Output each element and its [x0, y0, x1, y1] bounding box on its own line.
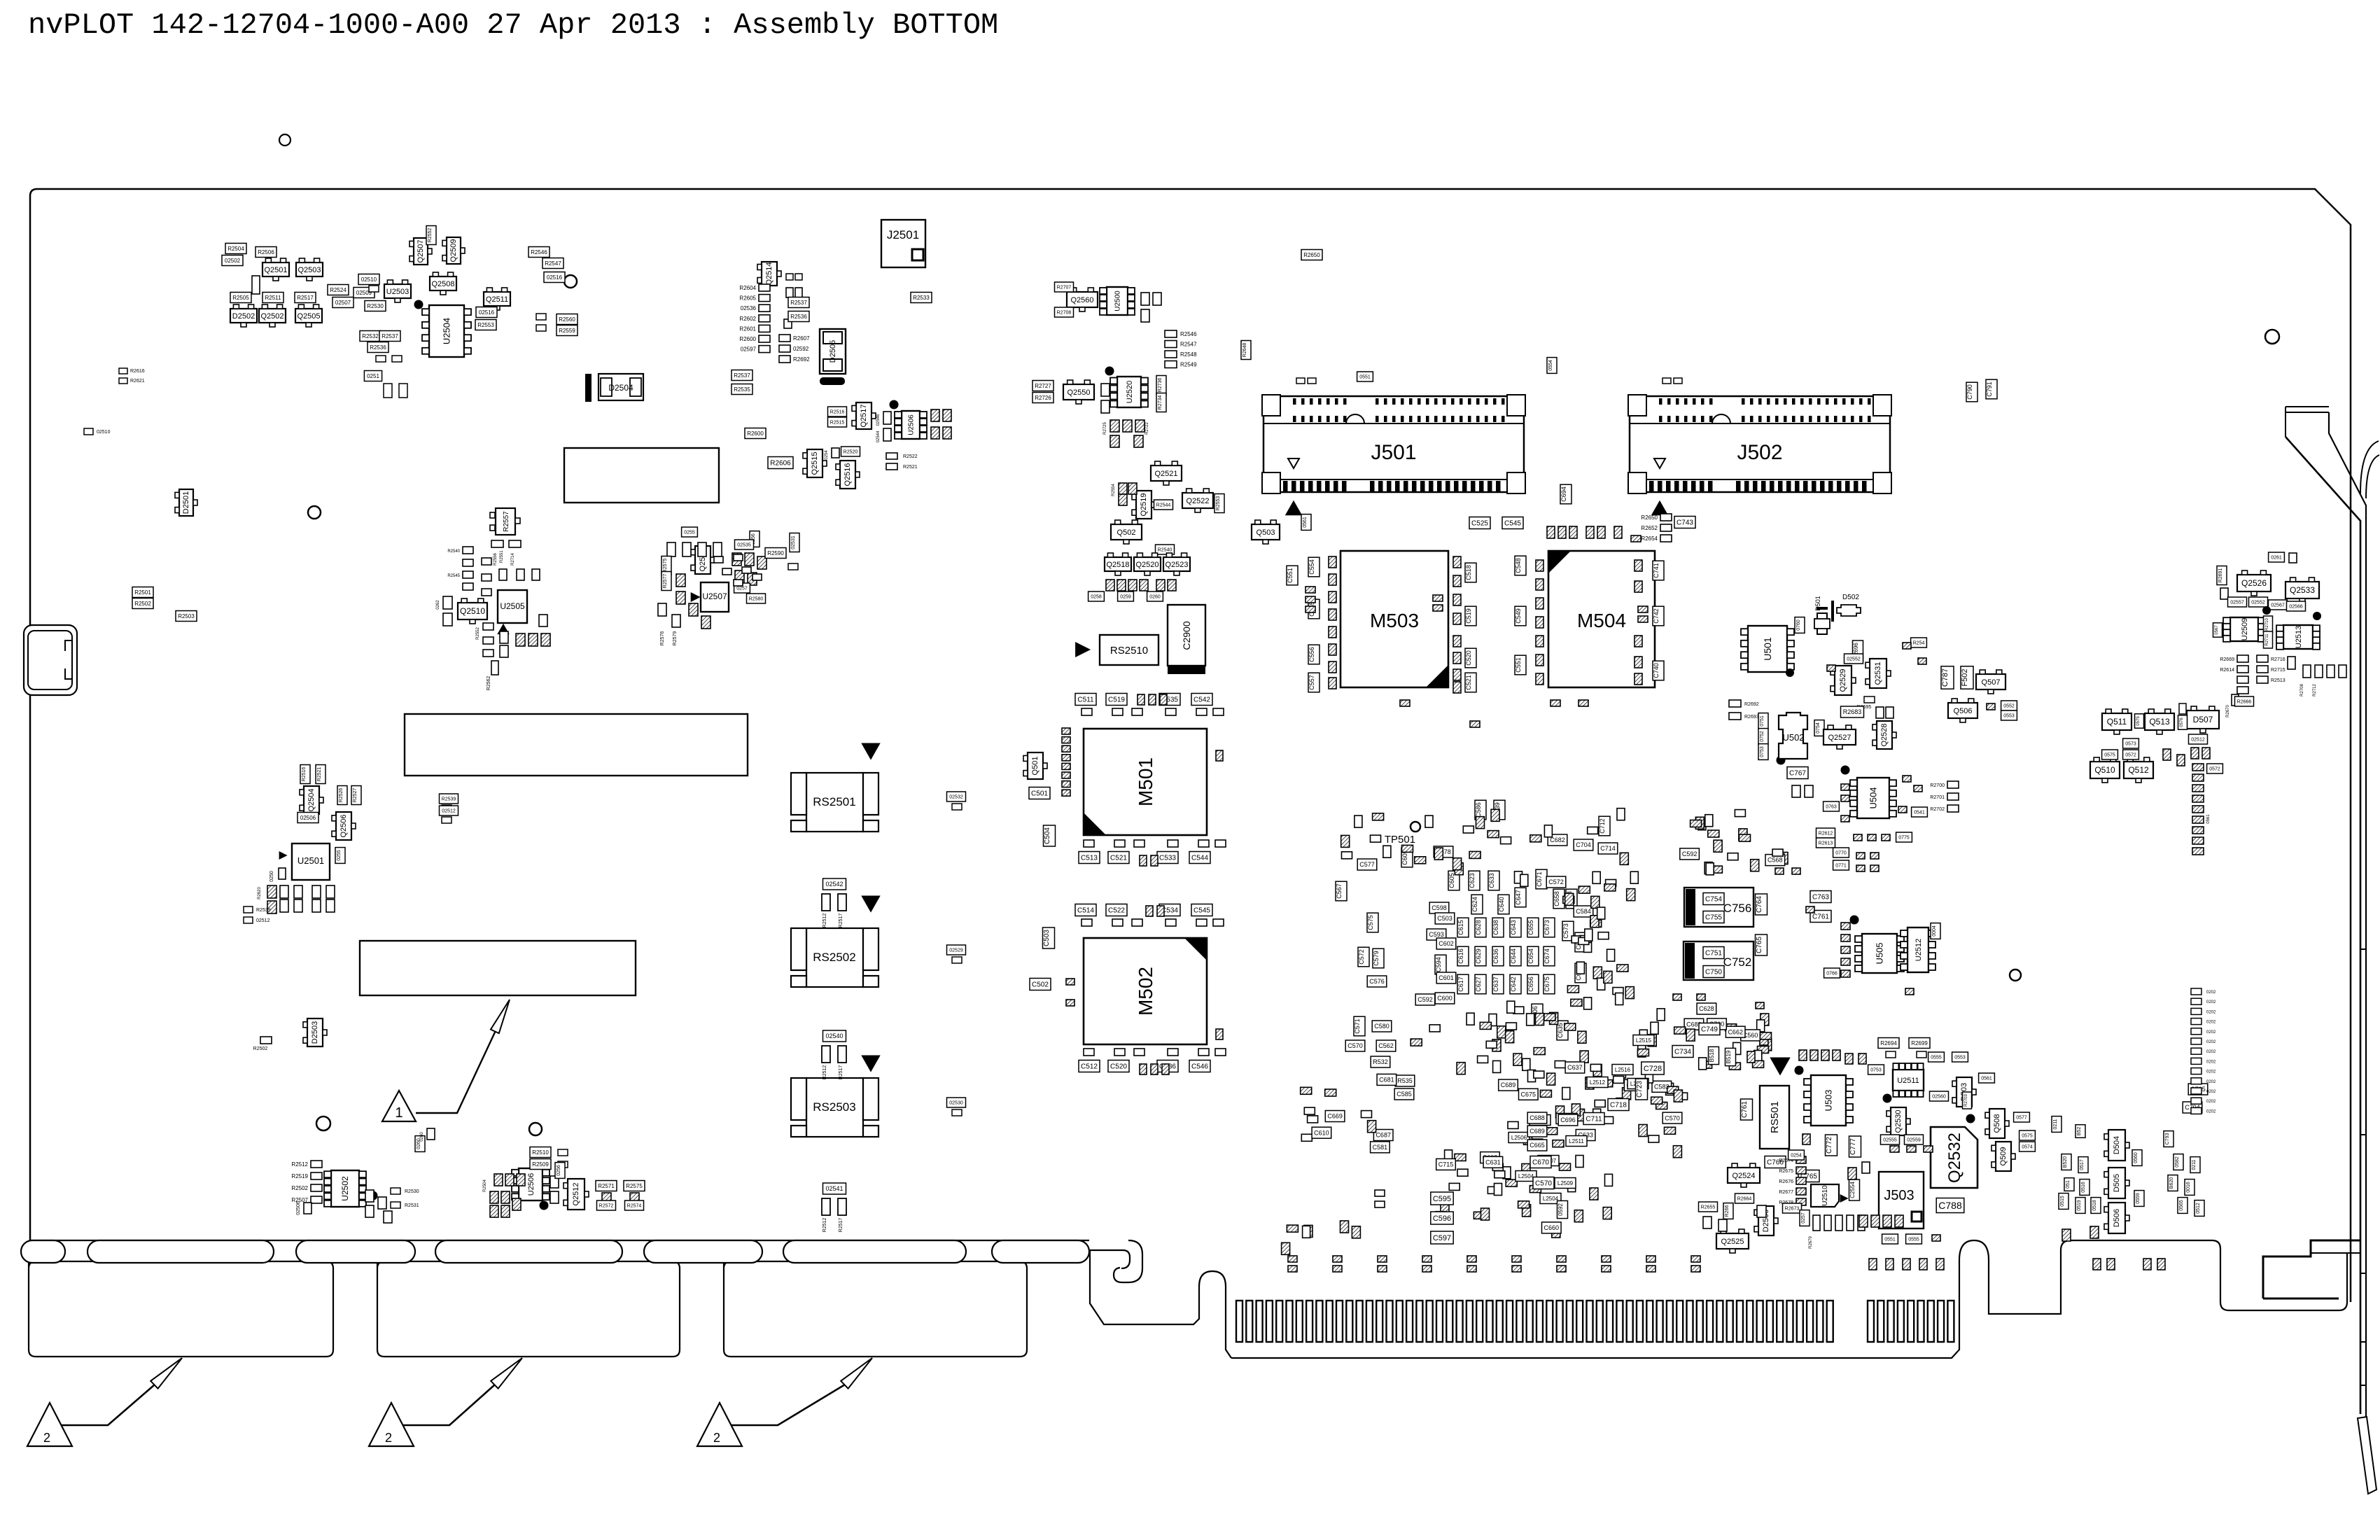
svg-text:R2654: R2654	[1641, 535, 1658, 542]
svg-text:0770: 0770	[1835, 851, 1847, 856]
svg-text:C623: C623	[1469, 873, 1476, 888]
svg-text:M503: M503	[1370, 610, 1419, 631]
svg-text:R2532: R2532	[362, 333, 379, 339]
svg-text:0766: 0766	[1826, 972, 1837, 976]
svg-text:R2539: R2539	[442, 797, 456, 802]
svg-text:Q2524: Q2524	[1732, 1172, 1755, 1180]
svg-text:C544: C544	[1191, 855, 1208, 862]
svg-text:R2714: R2714	[511, 553, 515, 566]
svg-text:R2691: R2691	[2218, 568, 2223, 583]
svg-text:R2521: R2521	[317, 767, 322, 782]
svg-text:02560: 02560	[1932, 1095, 1946, 1100]
svg-text:U2507: U2507	[702, 591, 727, 601]
svg-text:0262: 0262	[436, 600, 440, 610]
svg-text:R2675: R2675	[1779, 1169, 1793, 1174]
svg-text:02536: 02536	[741, 305, 757, 311]
svg-text:R2677: R2677	[1779, 1190, 1793, 1195]
svg-text:M504: M504	[1577, 610, 1626, 631]
svg-text:D505: D505	[2113, 1174, 2121, 1192]
svg-text:C638: C638	[1492, 920, 1499, 935]
svg-text:R2666: R2666	[2237, 700, 2252, 705]
svg-text:0551: 0551	[1884, 1238, 1896, 1242]
svg-text:0567: 0567	[2215, 625, 2219, 635]
svg-text:C662: C662	[1728, 1028, 1743, 1035]
svg-text:C580: C580	[1374, 1023, 1389, 1030]
svg-text:C567: C567	[1336, 883, 1343, 899]
svg-text:C577: C577	[1359, 861, 1375, 868]
svg-text:C549: C549	[1515, 608, 1522, 624]
svg-text:C687: C687	[1375, 1132, 1391, 1139]
svg-text:Q2523: Q2523	[1165, 561, 1188, 569]
svg-text:02512: 02512	[442, 809, 456, 814]
svg-text:C694: C694	[1560, 486, 1567, 502]
svg-text:R2537: R2537	[734, 372, 750, 379]
svg-text:Q2521: Q2521	[1154, 470, 1177, 478]
svg-text:C656: C656	[1527, 976, 1534, 992]
svg-text:R2539: R2539	[256, 908, 271, 913]
svg-text:RS501: RS501	[1769, 1101, 1781, 1133]
svg-text:Q2527: Q2527	[1828, 734, 1851, 742]
svg-text:C712: C712	[1599, 818, 1606, 834]
svg-text:U2505: U2505	[500, 601, 525, 611]
svg-text:L2504: L2504	[1518, 1173, 1534, 1179]
svg-text:C585: C585	[1396, 1091, 1412, 1098]
svg-text:R2512: R2512	[822, 913, 827, 928]
svg-text:0760: 0760	[1796, 619, 1801, 631]
svg-text:C671: C671	[1536, 871, 1543, 887]
svg-text:R2506: R2506	[258, 249, 274, 255]
svg-text:Q2520: Q2520	[1135, 561, 1158, 569]
svg-text:R2571: R2571	[598, 1183, 615, 1189]
svg-text:C674: C674	[1543, 948, 1550, 964]
svg-text:Q511: Q511	[2107, 717, 2127, 727]
svg-text:C2900: C2900	[1181, 621, 1192, 650]
svg-text:0559: 0559	[2136, 1193, 2141, 1204]
svg-text:0541: 0541	[1914, 811, 1925, 815]
svg-text:0211: 0211	[2053, 1119, 2058, 1129]
svg-text:R2524: R2524	[330, 287, 346, 293]
svg-text:02516: 02516	[479, 309, 495, 316]
svg-text:Q2550: Q2550	[1067, 388, 1090, 397]
svg-text:C633: C633	[1488, 873, 1495, 888]
svg-text:C533: C533	[1159, 855, 1176, 862]
svg-text:U2503: U2503	[386, 288, 409, 296]
svg-text:0254: 0254	[825, 450, 829, 460]
svg-text:R2533: R2533	[913, 295, 930, 301]
svg-text:Q2518: Q2518	[1106, 561, 1129, 569]
svg-text:R2553: R2553	[477, 322, 494, 328]
svg-text:C551: C551	[1287, 568, 1294, 583]
svg-text:0575: 0575	[2104, 753, 2115, 758]
svg-text:R2664: R2664	[1737, 1197, 1752, 1202]
svg-text:R535: R535	[1397, 1077, 1413, 1084]
svg-text:R2517: R2517	[839, 1218, 843, 1233]
svg-text:C740: C740	[1653, 663, 1660, 678]
svg-text:R2708: R2708	[1057, 310, 1072, 315]
svg-text:02529: 02529	[949, 948, 963, 953]
svg-text:0575: 0575	[2136, 716, 2141, 726]
svg-text:R2734: R2734	[1158, 395, 1163, 410]
svg-text:0004: 0004	[1932, 925, 1937, 937]
svg-text:R2722: R2722	[1145, 422, 1149, 435]
svg-text:C520: C520	[1465, 650, 1472, 666]
svg-text:0560: 0560	[2134, 1152, 2138, 1163]
svg-text:R2679: R2679	[1809, 1236, 1813, 1249]
svg-text:02516: 02516	[547, 274, 563, 281]
svg-text:D506: D506	[2113, 1209, 2121, 1227]
svg-text:R2612: R2612	[1819, 832, 1833, 836]
svg-text:Q2509: Q2509	[449, 239, 458, 262]
svg-text:C551: C551	[1515, 657, 1522, 673]
svg-text:02557: 02557	[2230, 601, 2244, 605]
svg-text:R2517: R2517	[297, 295, 314, 301]
svg-text:0260: 0260	[1149, 595, 1161, 600]
svg-text:C644: C644	[1510, 948, 1517, 964]
svg-text:C788: C788	[1938, 1200, 1962, 1211]
svg-text:R2552: R2552	[476, 627, 480, 640]
svg-text:02506: 02506	[300, 815, 316, 821]
svg-text:R2562: R2562	[486, 676, 491, 691]
svg-text:02559: 02559	[1907, 1138, 1921, 1143]
svg-text:C605: C605	[1448, 873, 1455, 888]
svg-text:C665: C665	[1529, 1142, 1545, 1149]
svg-text:D2504: D2504	[608, 383, 633, 393]
svg-text:TP501: TP501	[1385, 834, 1415, 846]
svg-text:R2572: R2572	[599, 1204, 614, 1209]
svg-text:0516: 0516	[2081, 1182, 2086, 1193]
svg-text:051: 051	[2066, 1180, 2071, 1189]
svg-text:C545: C545	[1193, 907, 1210, 915]
svg-text:D2502: D2502	[232, 312, 255, 321]
svg-text:R2546: R2546	[531, 249, 547, 255]
svg-text:R2517: R2517	[839, 1065, 843, 1080]
svg-text:C660: C660	[1544, 1224, 1560, 1231]
svg-text:C572: C572	[1358, 949, 1365, 965]
svg-text:0561: 0561	[1981, 1077, 1992, 1081]
svg-text:R2519: R2519	[291, 1173, 308, 1179]
svg-text:C525: C525	[1471, 520, 1488, 528]
svg-text:R2700: R2700	[1930, 783, 1945, 788]
svg-text:RS2510: RS2510	[1110, 645, 1148, 657]
svg-text:R2708: R2708	[2300, 684, 2304, 696]
svg-text:02512: 02512	[2191, 738, 2205, 743]
svg-text:2: 2	[43, 1431, 50, 1445]
svg-text:R2579: R2579	[673, 631, 678, 646]
svg-text:02512: 02512	[256, 918, 270, 923]
svg-text:R2509: R2509	[532, 1161, 549, 1168]
svg-text:Q2516: Q2516	[843, 463, 852, 486]
svg-text:02531: 02531	[791, 535, 796, 549]
svg-text:Q2530: Q2530	[1894, 1109, 1903, 1133]
svg-text:1: 1	[395, 1105, 402, 1121]
svg-text:L2509: L2509	[1557, 1180, 1574, 1186]
svg-text:0202: 0202	[2206, 990, 2216, 995]
svg-text:C2554: C2554	[1849, 1182, 1856, 1198]
svg-text:C556: C556	[1308, 647, 1315, 662]
svg-text:0582: 0582	[2175, 1156, 2180, 1168]
svg-text:0519: 0519	[2077, 1200, 2082, 1211]
svg-text:B620: B620	[2169, 1177, 2174, 1189]
svg-text:U2501: U2501	[297, 855, 324, 866]
svg-text:Q509: Q509	[1999, 1147, 2008, 1166]
svg-text:C511: C511	[1077, 696, 1094, 704]
svg-text:R2621: R2621	[130, 379, 145, 384]
svg-text:C502: C502	[1032, 981, 1049, 989]
svg-text:C584: C584	[1576, 908, 1591, 915]
svg-text:0256: 0256	[556, 1165, 561, 1176]
svg-text:R2655: R2655	[1701, 1205, 1716, 1210]
svg-text:Q2501: Q2501	[264, 266, 287, 274]
svg-text:02530: 02530	[949, 1101, 963, 1106]
svg-text:C513: C513	[1081, 855, 1098, 862]
svg-text:J502: J502	[1737, 441, 1782, 464]
svg-text:0202: 0202	[2206, 1070, 2216, 1074]
svg-text:Q2515: Q2515	[811, 451, 819, 475]
svg-text:C734: C734	[1674, 1049, 1691, 1056]
svg-text:C576: C576	[1369, 978, 1385, 985]
svg-text:F502: F502	[1961, 668, 1969, 686]
svg-text:C512: C512	[1081, 1063, 1098, 1071]
svg-text:R2606: R2606	[770, 460, 791, 468]
svg-text:R2504: R2504	[227, 246, 244, 252]
svg-text:C728: C728	[1644, 1065, 1662, 1073]
svg-text:C637: C637	[1567, 1064, 1583, 1071]
svg-text:R2548: R2548	[1180, 351, 1197, 358]
svg-text:C681: C681	[1379, 1077, 1394, 1084]
svg-text:R2577: R2577	[663, 574, 668, 589]
svg-text:0576: 0576	[2180, 717, 2184, 727]
svg-text:R2699: R2699	[1911, 1040, 1928, 1046]
svg-text:C761: C761	[1812, 913, 1829, 921]
svg-text:C519: C519	[1465, 608, 1472, 624]
svg-text:0577: 0577	[2016, 1116, 2027, 1121]
svg-text:R2512: R2512	[822, 1218, 827, 1233]
svg-text:0202: 0202	[2206, 1080, 2216, 1084]
svg-text:D2501: D2501	[182, 491, 190, 514]
svg-text:0551: 0551	[1359, 375, 1371, 380]
svg-text:0254: 0254	[1791, 1154, 1802, 1158]
svg-text:C617: C617	[1457, 976, 1464, 992]
svg-text:C636: C636	[1492, 948, 1499, 964]
svg-text:C756: C756	[1723, 902, 1752, 915]
svg-text:02507: 02507	[335, 300, 351, 306]
svg-text:R2683: R2683	[1843, 708, 1862, 715]
svg-text:0255: 0255	[684, 531, 695, 535]
svg-text:C742: C742	[1653, 608, 1660, 624]
svg-text:0575: 0575	[2022, 1134, 2033, 1139]
svg-text:C655: C655	[1527, 920, 1534, 935]
svg-text:D502: D502	[1842, 594, 1859, 601]
svg-text:C562: C562	[1378, 1042, 1394, 1049]
svg-text:C593: C593	[1429, 931, 1444, 938]
svg-text:U501: U501	[1762, 637, 1773, 661]
svg-text:R2692: R2692	[793, 356, 810, 363]
svg-text:R2559: R2559	[559, 328, 575, 334]
svg-text:C764: C764	[1756, 896, 1763, 913]
svg-text:R2613: R2613	[1819, 841, 1833, 846]
svg-text:0202: 0202	[2206, 1090, 2216, 1094]
svg-text:R2652: R2652	[1641, 525, 1658, 531]
svg-text:0260: 0260	[420, 1132, 424, 1142]
svg-text:R254: R254	[1913, 641, 1925, 646]
svg-text:R2503: R2503	[178, 613, 195, 619]
svg-text:0517: 0517	[2080, 1159, 2085, 1170]
svg-text:C793: C793	[2165, 1133, 2170, 1145]
svg-text:C557: C557	[1308, 675, 1315, 690]
svg-text:R2510: R2510	[532, 1149, 549, 1156]
svg-text:C592: C592	[1417, 996, 1433, 1003]
svg-text:D504: D504	[2113, 1136, 2121, 1154]
svg-text:C688: C688	[1529, 1114, 1545, 1121]
svg-text:R2515: R2515	[830, 421, 845, 426]
svg-text:C594: C594	[1435, 957, 1442, 972]
svg-text:U2500: U2500	[1114, 290, 1122, 311]
svg-text:R2673: R2673	[1785, 1207, 1800, 1212]
svg-text:R2530: R2530	[405, 1189, 419, 1194]
svg-text:R2712: R2712	[2313, 684, 2317, 696]
svg-text:R2557: R2557	[503, 511, 510, 532]
svg-text:Q2533: Q2533	[2290, 585, 2315, 595]
svg-text:R2547: R2547	[545, 260, 561, 267]
svg-text:R2726: R2726	[1035, 395, 1051, 401]
svg-text:Q2503: Q2503	[297, 266, 321, 274]
svg-text:C689: C689	[1501, 1081, 1516, 1088]
svg-text:R2549: R2549	[1180, 362, 1197, 368]
svg-text:C752: C752	[1723, 955, 1752, 969]
svg-text:R2512: R2512	[822, 1065, 827, 1080]
svg-text:02542: 02542	[825, 881, 843, 888]
svg-text:0202: 0202	[2206, 1021, 2216, 1025]
svg-text:Q2511: Q2511	[486, 295, 508, 304]
svg-text:U2510: U2510	[1821, 1185, 1829, 1206]
svg-text:R2650: R2650	[1303, 252, 1320, 258]
svg-text:C675: C675	[1543, 976, 1550, 992]
svg-text:C629: C629	[1475, 948, 1482, 964]
svg-text:U502: U502	[1782, 732, 1804, 743]
svg-text:R2536: R2536	[790, 314, 807, 320]
svg-text:02555: 02555	[1883, 1138, 1897, 1143]
svg-text:02510: 02510	[97, 430, 111, 435]
svg-text:C624: C624	[1471, 897, 1478, 912]
svg-text:Q2529: Q2529	[1839, 668, 1847, 692]
svg-text:C640: C640	[1498, 897, 1505, 912]
svg-text:R2620: R2620	[258, 887, 262, 899]
svg-text:0518: 0518	[2092, 1200, 2097, 1211]
svg-text:R2537: R2537	[381, 333, 398, 339]
svg-text:C670: C670	[1532, 1159, 1549, 1167]
svg-text:02597: 02597	[741, 346, 757, 353]
svg-text:Q501: Q501	[1031, 757, 1039, 776]
svg-text:C548: C548	[1515, 558, 1522, 573]
svg-text:L2506: L2506	[1511, 1135, 1527, 1141]
svg-text:02552: 02552	[2251, 601, 2265, 605]
svg-text:R2676: R2676	[1779, 1179, 1793, 1184]
svg-text:0257: 0257	[736, 587, 748, 591]
svg-text:B52: B52	[2077, 1127, 2082, 1136]
svg-text:C696: C696	[1560, 1116, 1576, 1123]
svg-text:R2716: R2716	[2271, 657, 2285, 662]
svg-text:R2535: R2535	[734, 386, 750, 393]
svg-text:Q2504: Q2504	[307, 788, 316, 811]
svg-text:R2520: R2520	[843, 450, 858, 455]
svg-text:R2522: R2522	[903, 454, 918, 459]
svg-text:Q508: Q508	[1993, 1114, 2001, 1133]
svg-text:RS2502: RS2502	[813, 951, 855, 964]
svg-text:Q512: Q512	[2128, 765, 2149, 775]
svg-text:R2511: R2511	[265, 295, 282, 301]
svg-text:C750: C750	[1705, 969, 1722, 976]
svg-text:C597: C597	[1433, 1234, 1451, 1242]
svg-text:0552: 0552	[2003, 704, 2015, 709]
svg-text:R2517: R2517	[839, 913, 843, 928]
svg-text:02506: 02506	[296, 1201, 301, 1215]
svg-text:C669: C669	[1327, 1113, 1343, 1120]
svg-text:C581: C581	[1373, 1144, 1388, 1151]
svg-text:R2701: R2701	[1930, 795, 1945, 800]
svg-text:C522: C522	[1108, 907, 1125, 915]
svg-text:L2504: L2504	[1543, 1196, 1559, 1202]
svg-text:R2531: R2531	[405, 1203, 419, 1208]
svg-text:0261: 0261	[2271, 556, 2282, 561]
svg-text:R2576: R2576	[660, 631, 665, 646]
svg-text:R2553: R2553	[1216, 496, 1221, 511]
svg-text:C518: C518	[1465, 565, 1472, 580]
svg-text:R2516: R2516	[302, 767, 307, 782]
svg-text:C714: C714	[1600, 845, 1616, 852]
svg-text:C542: C542	[1193, 696, 1210, 704]
svg-text:R2703: R2703	[1964, 1094, 1968, 1107]
svg-text:C790: C790	[1966, 384, 1973, 400]
svg-text:U2506: U2506	[908, 414, 916, 435]
svg-text:R2600: R2600	[739, 336, 756, 342]
svg-text:U505: U505	[1875, 942, 1885, 964]
svg-text:C689: C689	[1529, 1128, 1545, 1135]
svg-text:02592: 02592	[793, 346, 809, 352]
svg-text:C586: C586	[1475, 802, 1482, 818]
svg-text:C682: C682	[1550, 836, 1565, 843]
svg-text:R2527: R2527	[353, 788, 358, 803]
svg-text:C711: C711	[1585, 1116, 1602, 1123]
svg-text:B519: B519	[1725, 1050, 1732, 1063]
svg-text:R2574: R2574	[627, 1204, 642, 1209]
svg-text:0554: 0554	[1548, 360, 1553, 371]
svg-text:Q2506: Q2506	[339, 814, 348, 837]
svg-text:C546: C546	[1191, 1063, 1208, 1071]
svg-text:U2509: U2509	[2241, 618, 2249, 640]
svg-text:C751: C751	[1705, 950, 1722, 958]
svg-text:C637: C637	[1492, 976, 1499, 992]
svg-text:02566: 02566	[2289, 605, 2303, 610]
svg-text:R2694: R2694	[1880, 1040, 1897, 1046]
svg-text:C647: C647	[1515, 890, 1522, 905]
svg-text:C514: C514	[1077, 907, 1094, 915]
svg-text:R2607: R2607	[793, 335, 810, 342]
svg-text:C575: C575	[1367, 915, 1374, 930]
svg-text:0202: 0202	[2206, 1030, 2216, 1035]
svg-text:R2601: R2601	[739, 325, 756, 332]
svg-text:C595: C595	[1433, 1195, 1451, 1203]
svg-text:Q2517: Q2517	[860, 404, 868, 427]
svg-text:R2552: R2552	[428, 228, 433, 243]
svg-text:0259: 0259	[1120, 595, 1131, 600]
svg-text:C571: C571	[1354, 1018, 1361, 1034]
svg-text:C658: C658	[1553, 891, 1560, 906]
svg-text:R2546: R2546	[1180, 331, 1197, 337]
svg-text:Q506: Q506	[1954, 707, 1973, 715]
svg-text:C600: C600	[1437, 995, 1452, 1002]
svg-text:0771: 0771	[1835, 864, 1847, 869]
svg-text:0202: 0202	[2206, 1050, 2216, 1054]
